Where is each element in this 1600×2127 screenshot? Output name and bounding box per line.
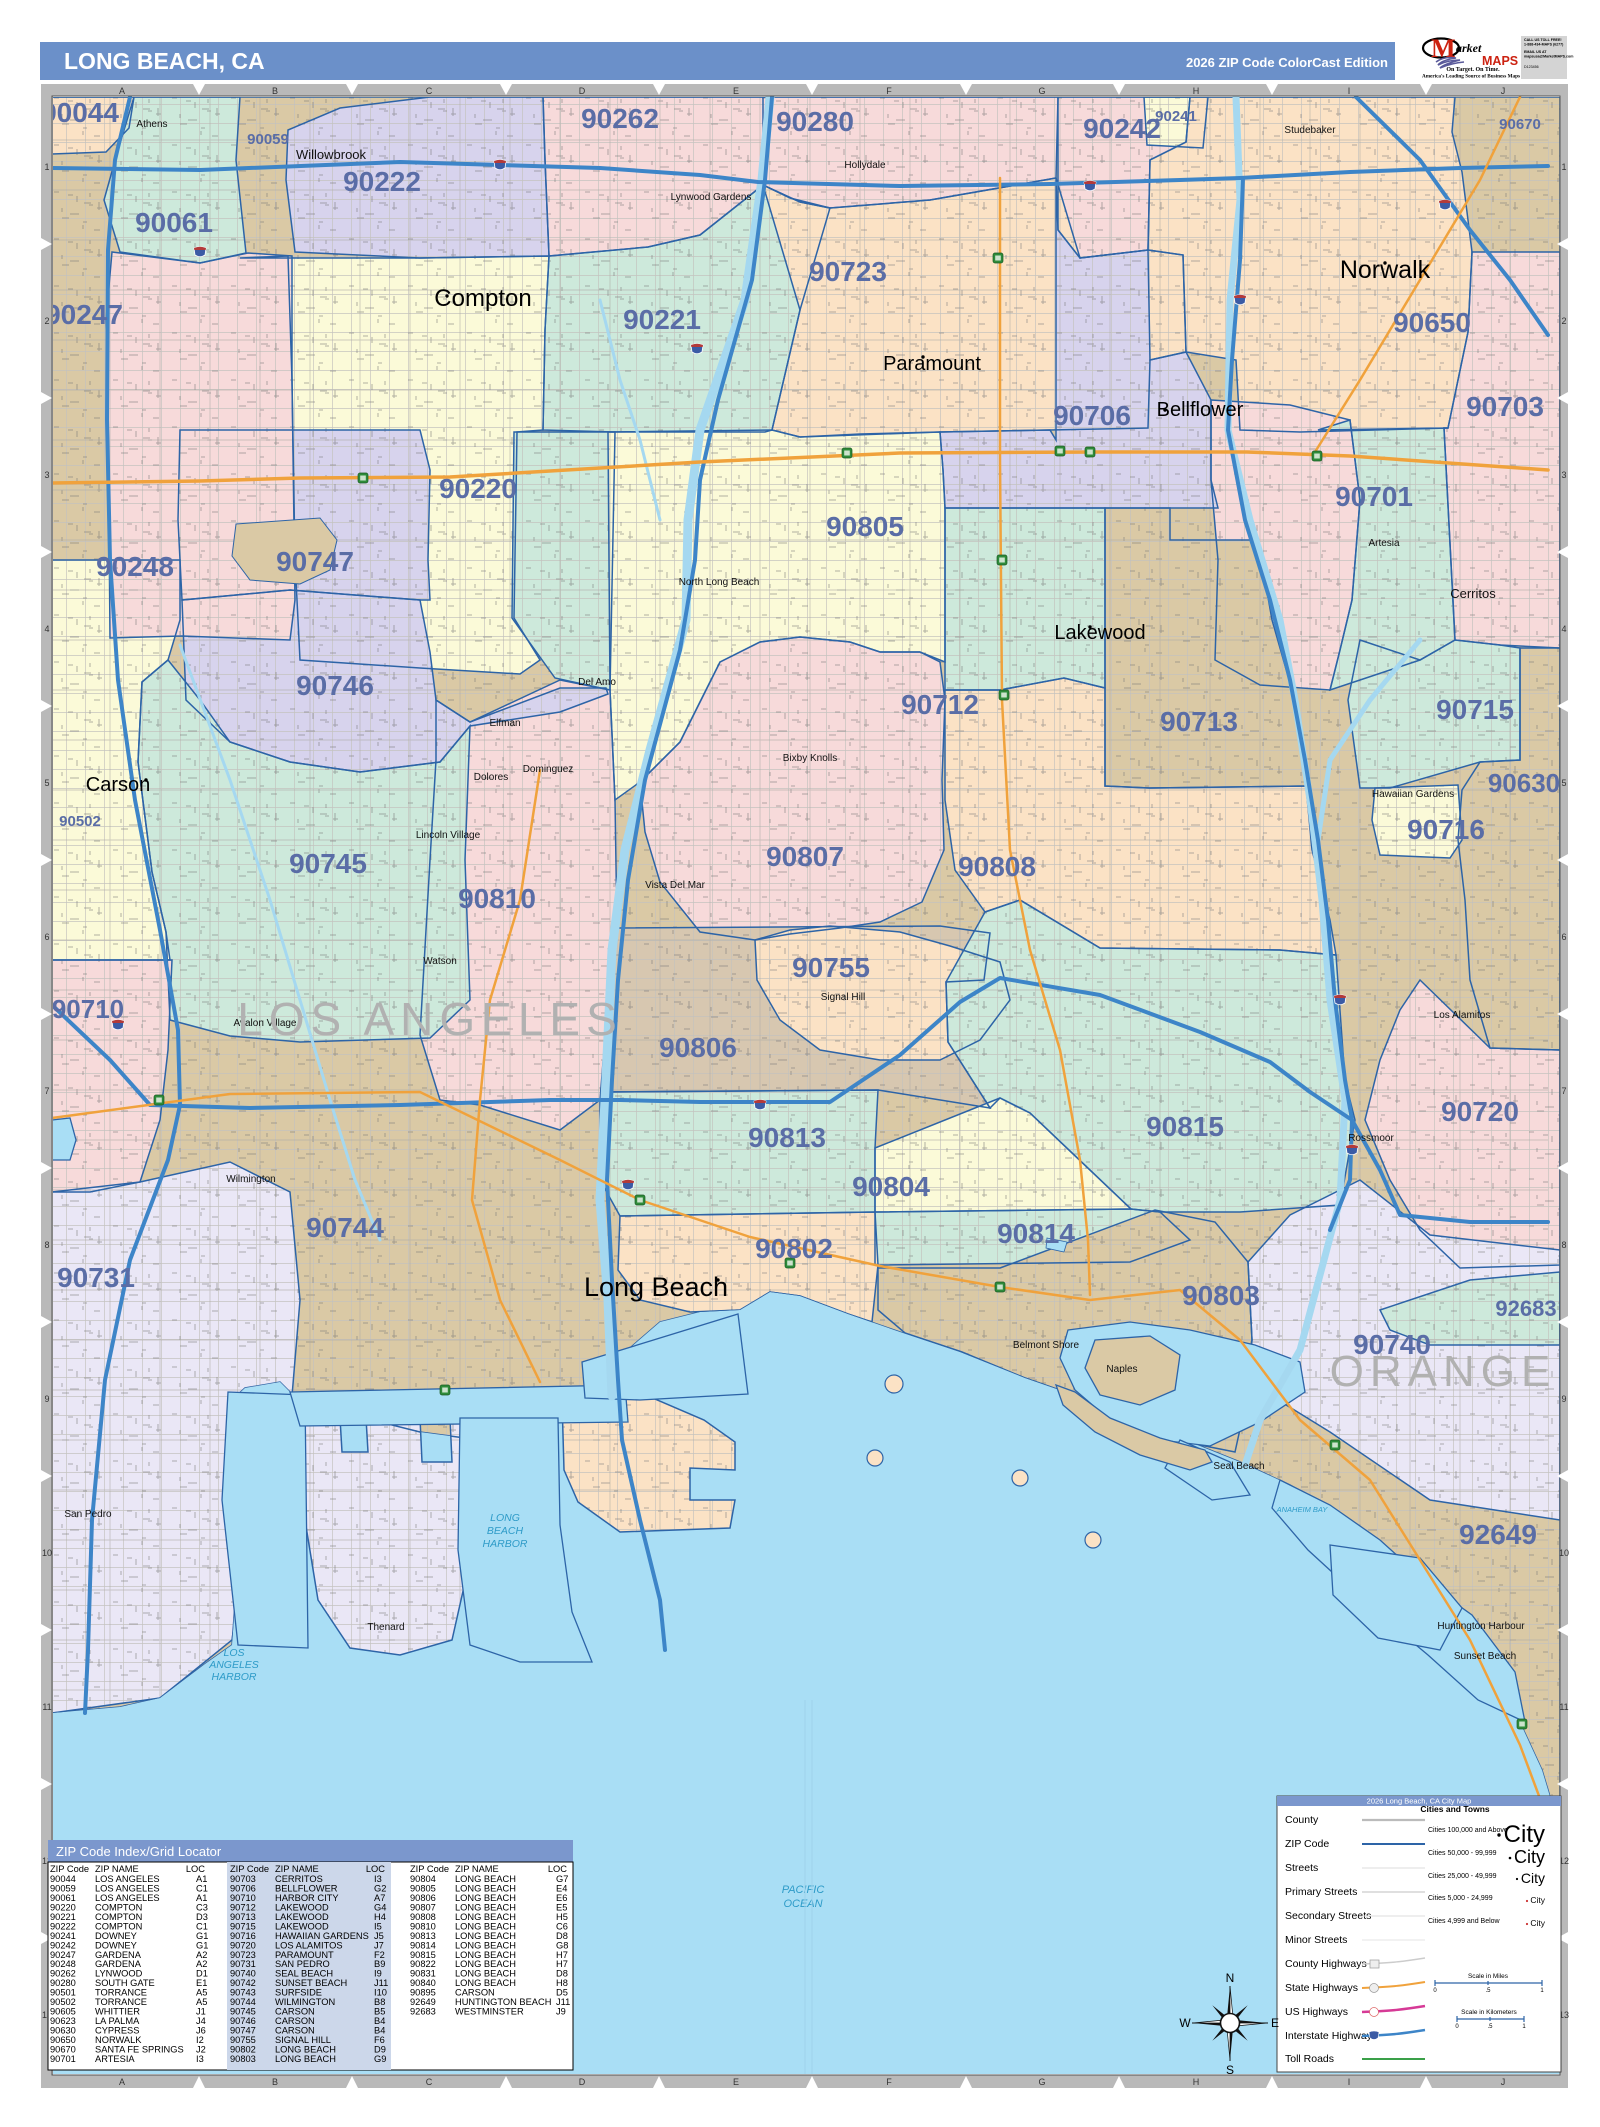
svg-text:Toll Roads: Toll Roads — [1285, 2053, 1334, 2065]
svg-text:I3: I3 — [196, 2054, 204, 2064]
svg-text:Hawaiian Gardens: Hawaiian Gardens — [1372, 789, 1454, 800]
svg-text:10: 10 — [42, 1548, 52, 1558]
svg-text:8: 8 — [1561, 1240, 1566, 1250]
svg-text:3: 3 — [44, 470, 49, 480]
svg-text:5: 5 — [44, 778, 49, 788]
svg-text:90280: 90280 — [776, 106, 854, 137]
svg-text:90220: 90220 — [439, 473, 517, 504]
svg-text:1-888-434-MAPS (6277): 1-888-434-MAPS (6277) — [1524, 43, 1564, 47]
svg-text:I: I — [1348, 86, 1351, 96]
svg-text:4: 4 — [1561, 624, 1566, 634]
svg-text:ANAHEIM BAY: ANAHEIM BAY — [1276, 1505, 1329, 1514]
svg-text:90803: 90803 — [1182, 1280, 1260, 1311]
svg-text:HARBOR: HARBOR — [212, 1671, 257, 1683]
svg-text:Thenard: Thenard — [367, 1622, 404, 1633]
svg-text:ZIP Code Index/Grid Locator: ZIP Code Index/Grid Locator — [56, 1844, 222, 1859]
svg-text:Seal Beach: Seal Beach — [1213, 1461, 1264, 1472]
svg-text:US Highways: US Highways — [1285, 2006, 1348, 2018]
svg-text:H: H — [1193, 86, 1200, 96]
svg-text:11: 11 — [1559, 1702, 1568, 1712]
svg-text:EMAIL US AT: EMAIL US AT — [1524, 50, 1547, 54]
svg-text:S: S — [1226, 2063, 1234, 2077]
svg-text:6: 6 — [1561, 932, 1566, 942]
svg-text:HARBOR: HARBOR — [483, 1538, 528, 1550]
svg-text:LOC: LOC — [186, 1864, 205, 1874]
svg-text:F: F — [886, 86, 892, 96]
svg-text:BEACH: BEACH — [487, 1525, 524, 1537]
svg-text:2: 2 — [1561, 316, 1566, 326]
svg-text:Rossmoor: Rossmoor — [1348, 1133, 1394, 1144]
svg-text:90701: 90701 — [1335, 481, 1413, 512]
svg-text:Lincoln Village: Lincoln Village — [416, 830, 481, 841]
svg-text:90710: 90710 — [52, 994, 124, 1024]
svg-text:92683: 92683 — [1495, 1296, 1556, 1321]
svg-text:G9: G9 — [374, 2054, 386, 2064]
svg-text:F: F — [886, 2077, 892, 2087]
svg-text:Watson: Watson — [423, 956, 457, 967]
svg-text:City: City — [1530, 1918, 1545, 1928]
svg-text:America's Leading Source of Bu: America's Leading Source of Business Map… — [1422, 74, 1520, 80]
svg-text:90242: 90242 — [1083, 113, 1161, 144]
svg-text:90241: 90241 — [1155, 108, 1197, 125]
svg-text:Naples: Naples — [1106, 1364, 1137, 1375]
svg-text:ORANGE: ORANGE — [1330, 1347, 1557, 1396]
svg-text:Minor Streets: Minor Streets — [1285, 1934, 1347, 1946]
svg-text:90630: 90630 — [1488, 768, 1560, 798]
svg-text:C: C — [426, 2077, 433, 2087]
svg-text:WESTMINSTER: WESTMINSTER — [455, 2007, 524, 2017]
svg-text:ZIP Code: ZIP Code — [1285, 1838, 1329, 1850]
svg-text:90803: 90803 — [230, 2054, 256, 2064]
svg-text:90815: 90815 — [1146, 1111, 1224, 1142]
svg-text:7: 7 — [44, 1086, 49, 1096]
svg-text:Wilmington: Wilmington — [226, 1174, 275, 1185]
svg-text:Dominguez: Dominguez — [523, 764, 574, 775]
svg-text:Cities 50,000 - 99,999: Cities 50,000 - 99,999 — [1428, 1850, 1497, 1857]
svg-text:Cities 5,000 - 24,999: Cities 5,000 - 24,999 — [1428, 1895, 1493, 1902]
svg-text:Streets: Streets — [1285, 1862, 1318, 1874]
svg-text:LOC: LOC — [548, 1864, 567, 1874]
svg-text:Cities and Towns: Cities and Towns — [1420, 1804, 1490, 1814]
svg-text:90715: 90715 — [1436, 694, 1514, 725]
svg-text:90813: 90813 — [748, 1122, 826, 1153]
svg-text:County Highways: County Highways — [1285, 1958, 1367, 1970]
svg-text:H: H — [1193, 2077, 1200, 2087]
svg-text:J: J — [1501, 86, 1506, 96]
svg-text:B: B — [272, 86, 278, 96]
svg-text:G: G — [1038, 2077, 1045, 2087]
svg-text:90807: 90807 — [766, 841, 844, 872]
svg-text:90723: 90723 — [809, 256, 887, 287]
svg-text:ZIP NAME: ZIP NAME — [95, 1864, 139, 1874]
svg-text:9: 9 — [44, 1394, 49, 1404]
svg-text:E: E — [733, 86, 739, 96]
svg-text:90720: 90720 — [1441, 1096, 1519, 1127]
svg-text:North Long Beach: North Long Beach — [679, 577, 760, 588]
svg-text:8: 8 — [44, 1240, 49, 1250]
svg-text:City: City — [1514, 1847, 1545, 1867]
svg-text:Cities 100,000 and Above: Cities 100,000 and Above — [1428, 1827, 1508, 1834]
svg-text:90802: 90802 — [755, 1233, 833, 1264]
svg-text:City: City — [1504, 1821, 1545, 1848]
svg-text:Huntington Harbour: Huntington Harbour — [1437, 1621, 1525, 1632]
svg-text:90061: 90061 — [135, 207, 213, 238]
svg-text:Sunset Beach: Sunset Beach — [1454, 1651, 1516, 1662]
svg-text:ZIP Code: ZIP Code — [50, 1864, 89, 1874]
svg-text:J9: J9 — [556, 2007, 566, 2017]
svg-text:11: 11 — [42, 1702, 51, 1712]
svg-text:4: 4 — [44, 624, 49, 634]
svg-text:Scale in Miles: Scale in Miles — [1468, 1973, 1509, 1980]
svg-text:90248: 90248 — [96, 551, 174, 582]
svg-text:1: 1 — [1561, 162, 1566, 172]
svg-text:90221: 90221 — [623, 304, 701, 335]
svg-text:Secondary Streets: Secondary Streets — [1285, 1910, 1371, 1922]
svg-text:G: G — [1038, 86, 1045, 96]
svg-text:90805: 90805 — [826, 511, 904, 542]
svg-text:ANGELES: ANGELES — [208, 1659, 259, 1671]
svg-text:90222: 90222 — [343, 166, 421, 197]
svg-text:90703: 90703 — [1466, 391, 1544, 422]
svg-text:PACIFIC: PACIFIC — [782, 1884, 825, 1896]
svg-text:ZIP NAME: ZIP NAME — [275, 1864, 319, 1874]
svg-text:LONG BEACH: LONG BEACH — [275, 2054, 336, 2064]
svg-text:Lakewood: Lakewood — [1054, 622, 1145, 644]
svg-text:E: E — [733, 2077, 739, 2087]
svg-text:90731: 90731 — [57, 1262, 135, 1293]
svg-text:90806: 90806 — [659, 1032, 737, 1063]
svg-text:2026 ZIP Code ColorCast Editio: 2026 ZIP Code ColorCast Edition — [1186, 55, 1388, 70]
svg-text:90746: 90746 — [296, 670, 374, 701]
svg-text:9: 9 — [1561, 1394, 1566, 1404]
svg-text:90814: 90814 — [997, 1218, 1075, 1249]
svg-text:Hollydale: Hollydale — [844, 160, 886, 171]
svg-text:1: 1 — [44, 162, 49, 172]
svg-text:Elfman: Elfman — [489, 718, 520, 729]
svg-text:Lynwood Gardens: Lynwood Gardens — [671, 192, 752, 203]
svg-text:Cities 25,000 - 49,999: Cities 25,000 - 49,999 — [1428, 1873, 1497, 1880]
svg-text:C: C — [426, 86, 433, 96]
svg-text:A: A — [119, 2077, 125, 2087]
svg-text:90712: 90712 — [901, 689, 979, 720]
svg-text:B: B — [272, 2077, 278, 2087]
svg-text:3: 3 — [1561, 470, 1566, 480]
svg-text:Signal Hill: Signal Hill — [821, 992, 865, 1003]
svg-text:LOS: LOS — [223, 1647, 244, 1659]
svg-text:10: 10 — [1559, 1548, 1569, 1558]
svg-text:LOC: LOC — [366, 1864, 385, 1874]
svg-text:ZIP Code: ZIP Code — [230, 1864, 269, 1874]
svg-text:90804: 90804 — [852, 1171, 930, 1202]
svg-text:San Pedro: San Pedro — [64, 1509, 112, 1520]
svg-text:City: City — [1521, 1870, 1545, 1886]
svg-text:W: W — [1179, 2016, 1191, 2030]
svg-text:90747: 90747 — [276, 546, 354, 577]
svg-text:Long Beach: Long Beach — [584, 1272, 728, 1302]
svg-text:Vista Del Mar: Vista Del Mar — [645, 880, 706, 891]
svg-text:Athens: Athens — [136, 119, 167, 130]
svg-text:Del Amo: Del Amo — [578, 677, 616, 688]
svg-text:ZIP Code: ZIP Code — [410, 1864, 449, 1874]
svg-text:2: 2 — [44, 316, 49, 326]
svg-text:E: E — [1271, 2016, 1279, 2030]
svg-text:7: 7 — [1561, 1086, 1566, 1096]
svg-text:90502: 90502 — [59, 813, 101, 830]
svg-text:LOS ANGELES: LOS ANGELES — [237, 993, 623, 1045]
svg-text:Belmont Shore: Belmont Shore — [1013, 1340, 1080, 1351]
svg-text:On Target. On Time.: On Target. On Time. — [1446, 67, 1500, 73]
svg-text:5: 5 — [1561, 778, 1566, 788]
svg-text:ZIP NAME: ZIP NAME — [455, 1864, 499, 1874]
svg-text:City: City — [1530, 1895, 1545, 1905]
svg-text:MAPS: MAPS — [1482, 54, 1518, 68]
svg-text:Dolores: Dolores — [474, 772, 508, 783]
svg-text:OCEAN: OCEAN — [783, 1898, 822, 1910]
svg-text:Bixby Knolls: Bixby Knolls — [783, 753, 837, 764]
svg-text:Compton: Compton — [434, 285, 531, 312]
svg-text:90701: 90701 — [50, 2054, 76, 2064]
svg-text:90059: 90059 — [247, 131, 289, 148]
svg-text:90716: 90716 — [1407, 814, 1485, 845]
svg-text:90810: 90810 — [458, 883, 536, 914]
svg-text:I: I — [1348, 2077, 1351, 2087]
svg-text:Cities 4,999 and Below: Cities 4,999 and Below — [1428, 1918, 1501, 1925]
svg-text:State Highways: State Highways — [1285, 1982, 1358, 1994]
svg-text:Primary Streets: Primary Streets — [1285, 1886, 1357, 1898]
svg-text:CALL US TOLL FREE!: CALL US TOLL FREE! — [1524, 38, 1562, 42]
svg-text:J: J — [1501, 2077, 1506, 2087]
svg-text:.5: .5 — [1487, 2024, 1493, 2030]
svg-text:Scale in Kilometers: Scale in Kilometers — [1461, 2009, 1517, 2016]
svg-text:arket: arket — [1456, 41, 1482, 55]
svg-text:D123456: D123456 — [1524, 65, 1539, 69]
svg-text:6: 6 — [44, 932, 49, 942]
svg-text:A: A — [119, 86, 125, 96]
svg-text:90744: 90744 — [306, 1212, 384, 1243]
svg-text:92683: 92683 — [410, 2007, 436, 2017]
svg-text:90670: 90670 — [1499, 116, 1541, 133]
svg-text:mapsusa@MarketMAPS.com: mapsusa@MarketMAPS.com — [1524, 55, 1573, 59]
svg-text:Willowbrook: Willowbrook — [296, 147, 367, 162]
svg-text:90247: 90247 — [45, 299, 123, 330]
svg-text:N: N — [1226, 1971, 1235, 1985]
svg-text:92649: 92649 — [1459, 1519, 1537, 1550]
svg-text:Paramount: Paramount — [883, 353, 981, 375]
svg-text:90650: 90650 — [1393, 307, 1471, 338]
svg-text:Los Alamitos: Los Alamitos — [1434, 1010, 1491, 1021]
svg-text:90706: 90706 — [1053, 400, 1131, 431]
svg-text:Norwalk: Norwalk — [1340, 256, 1431, 284]
svg-text:Cerritos: Cerritos — [1450, 586, 1496, 601]
svg-text:Studebaker: Studebaker — [1284, 125, 1336, 136]
svg-text:Carson: Carson — [86, 774, 150, 796]
svg-text:.5: .5 — [1485, 1988, 1491, 1994]
svg-text:Bellflower: Bellflower — [1157, 399, 1244, 421]
svg-text:ARTESIA: ARTESIA — [95, 2054, 135, 2064]
svg-text:D: D — [579, 86, 586, 96]
svg-text:Artesia: Artesia — [1368, 538, 1400, 549]
svg-text:90713: 90713 — [1160, 706, 1238, 737]
svg-text:90808: 90808 — [958, 851, 1036, 882]
svg-text:D: D — [579, 2077, 586, 2087]
svg-text:LONG: LONG — [490, 1512, 520, 1524]
svg-text:90262: 90262 — [581, 103, 659, 134]
svg-text:LONG BEACH, CA: LONG BEACH, CA — [64, 48, 265, 74]
svg-text:County: County — [1285, 1814, 1319, 1826]
svg-text:90755: 90755 — [792, 952, 870, 983]
svg-text:90745: 90745 — [289, 848, 367, 879]
